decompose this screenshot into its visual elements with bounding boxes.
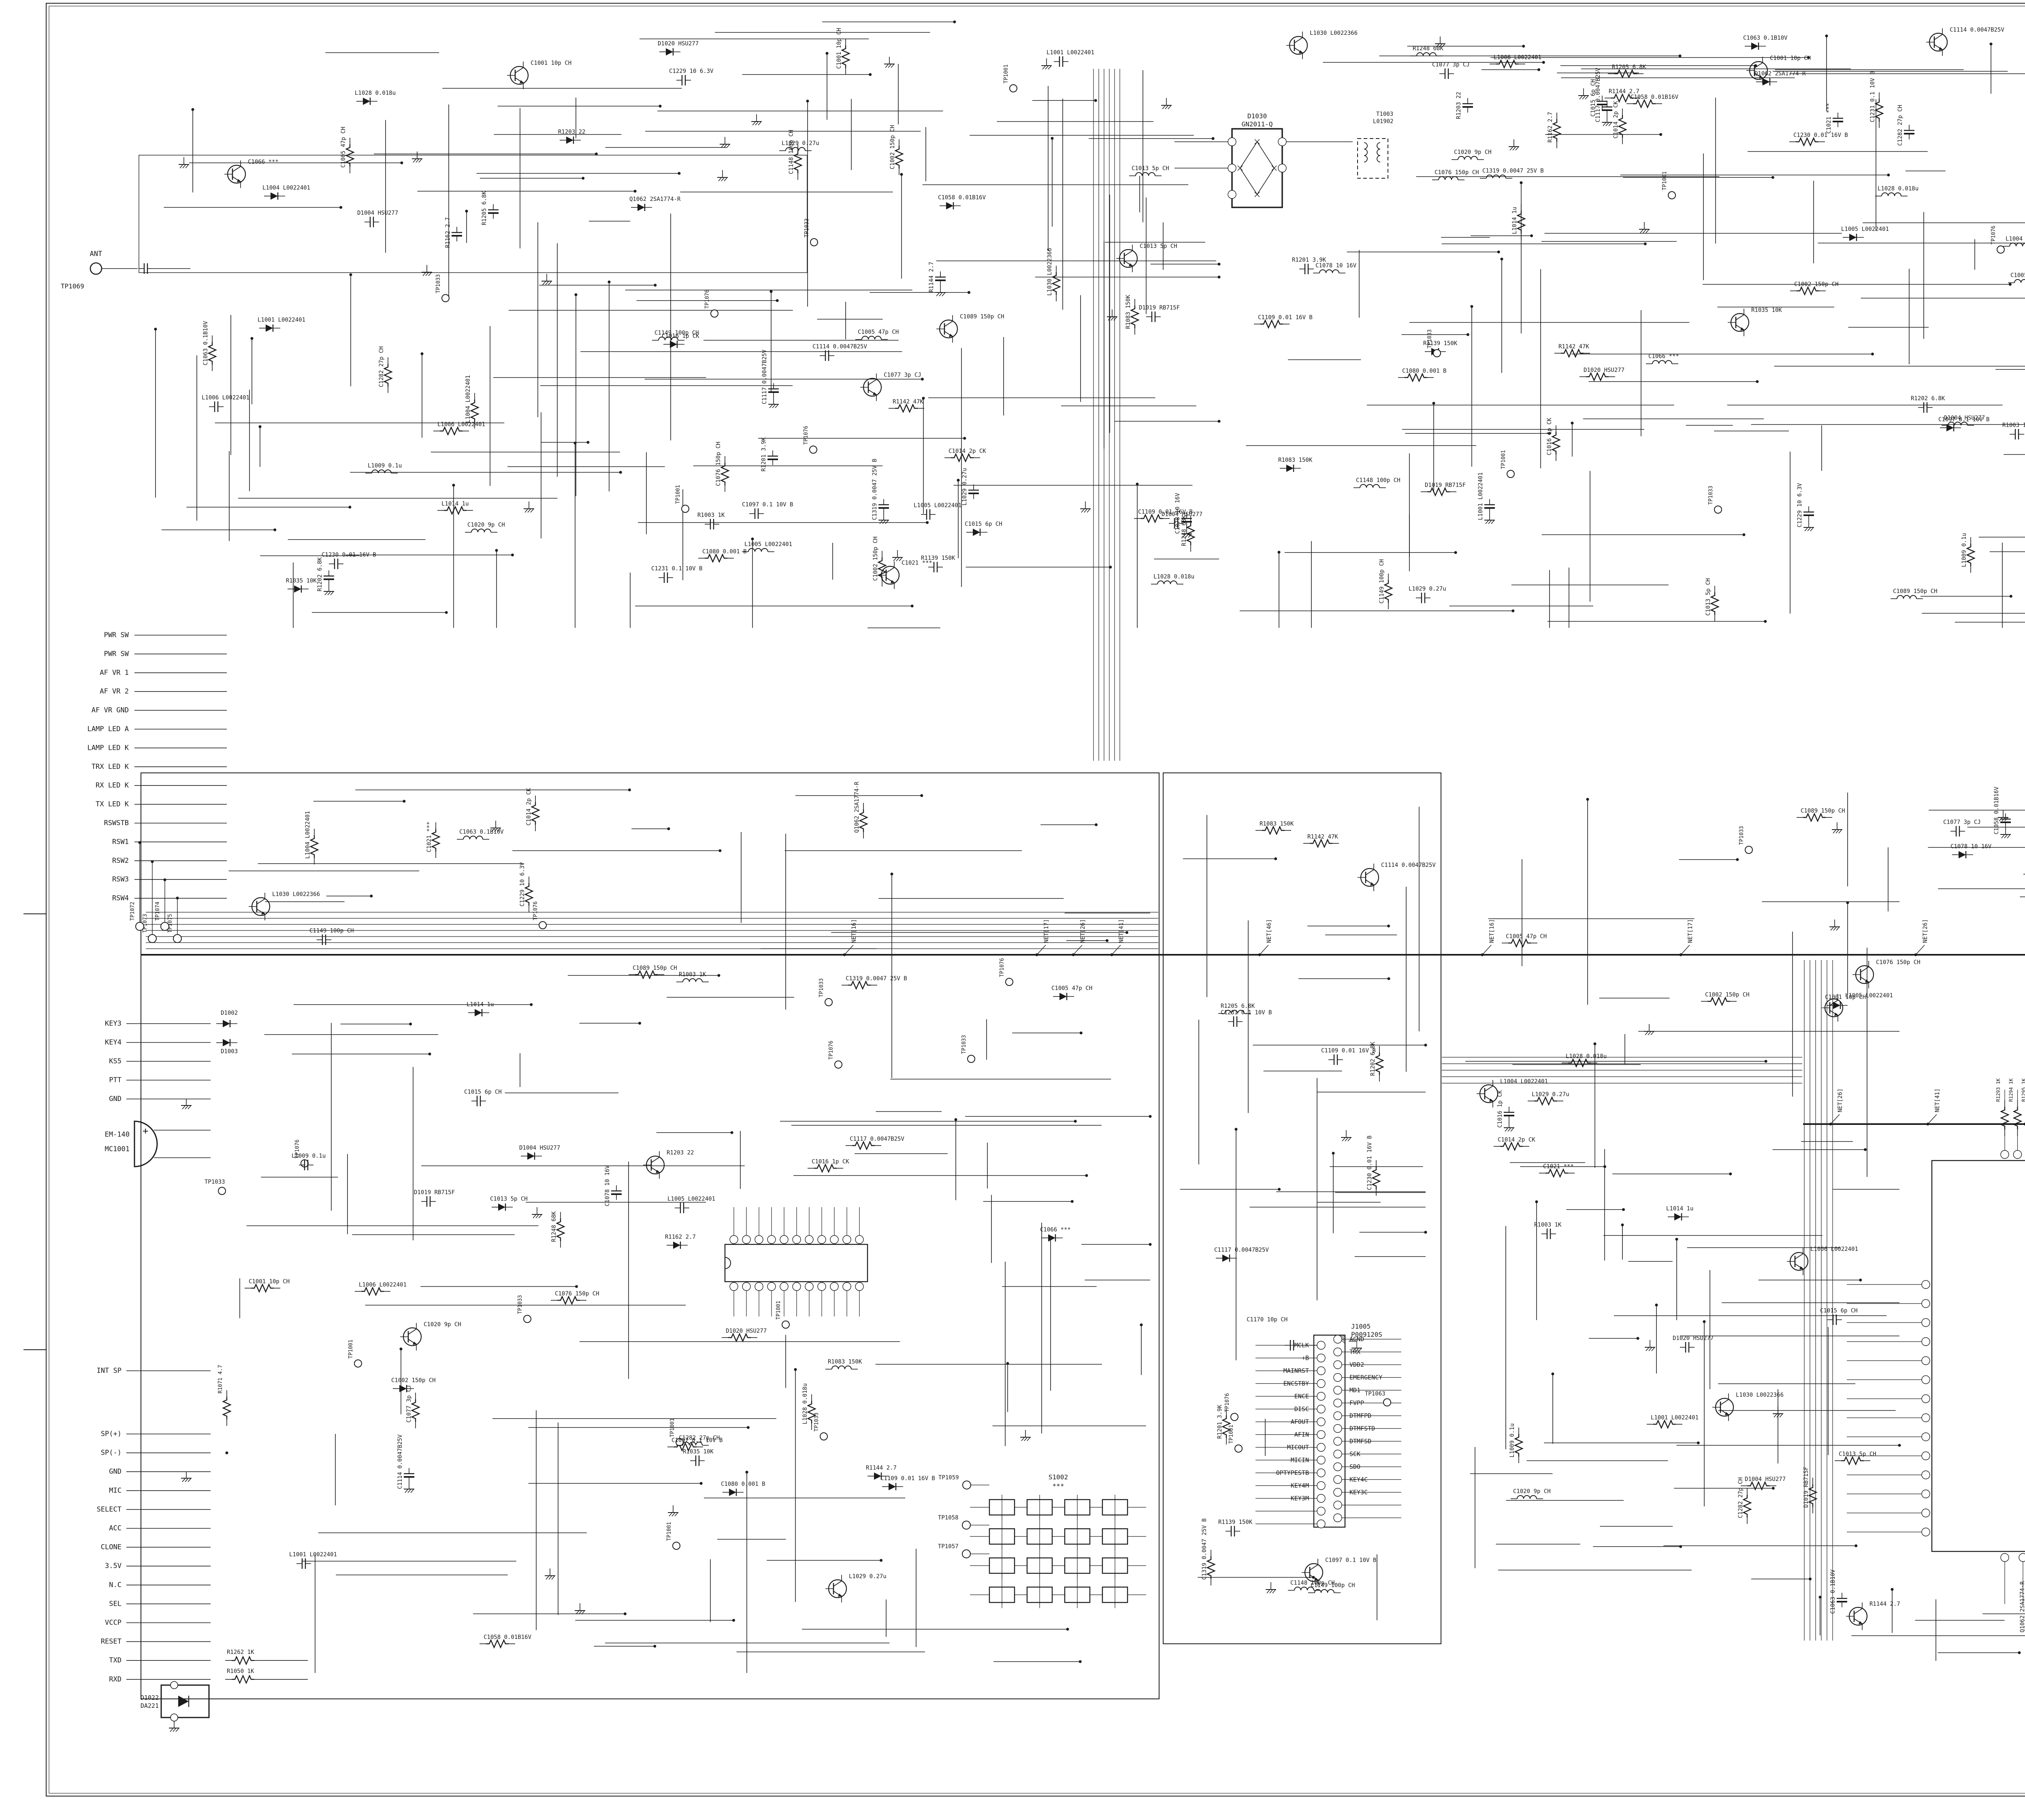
svg-text:C1063 0.1B10V: C1063 0.1B10V (1743, 35, 1788, 41)
svg-text:R1248 68K: R1248 68K (1181, 515, 1187, 546)
svg-text:DA221: DA221 (141, 1702, 159, 1709)
svg-text:C1148 100p CH: C1148 100p CH (1356, 477, 1400, 484)
svg-text:TP1069: TP1069 (61, 282, 84, 290)
svg-text:C1077 3p CJ: C1077 3p CJ (406, 1385, 412, 1423)
svg-text:TRX LED K: TRX LED K (92, 763, 129, 771)
svg-text:EM-140: EM-140 (105, 1131, 130, 1139)
svg-text:L1009 0.1u: L1009 0.1u (368, 463, 402, 469)
svg-text:C1230 0.01 16V B: C1230 0.01 16V B (1793, 132, 1848, 139)
landmark-layer (23, 3, 2025, 1796)
svg-text:PWR SW: PWR SW (104, 650, 129, 658)
svg-text:L1028 0.018u: L1028 0.018u (1566, 1053, 1607, 1060)
svg-text:C1020 9p CH: C1020 9p CH (424, 1321, 461, 1328)
svg-text:R1035 10K: R1035 10K (1751, 307, 1782, 314)
svg-text:C1005 47p CH: C1005 47p CH (858, 329, 899, 335)
svg-text:C1016 1p CK: C1016 1p CK (1497, 1090, 1503, 1128)
svg-text:L1006 L0022401: L1006 L0022401 (202, 395, 249, 401)
svg-text:C1231 0.1 10V B: C1231 0.1 10V B (1221, 1009, 1272, 1016)
svg-text:3.5V: 3.5V (105, 1562, 122, 1570)
svg-text:R1144 2.7: R1144 2.7 (928, 262, 935, 292)
svg-text:VCCP: VCCP (105, 1619, 122, 1627)
svg-text:C1058 0.01B16V: C1058 0.01B16V (938, 194, 986, 201)
svg-text:LAMP LED K: LAMP LED K (87, 744, 129, 752)
svg-text:D1019 RB715F: D1019 RB715F (1425, 482, 1466, 489)
svg-text:TP1033: TP1033 (814, 1412, 820, 1432)
svg-text:D1020 HSU277: D1020 HSU277 (1673, 1335, 1714, 1342)
svg-text:SEL: SEL (109, 1600, 122, 1608)
svg-text:D1004 HSU277: D1004 HSU277 (519, 1145, 560, 1151)
svg-text:TP1076: TP1076 (533, 901, 539, 920)
svg-text:L1030 L0022366: L1030 L0022366 (272, 891, 320, 898)
svg-text:RESET: RESET (101, 1638, 122, 1646)
svg-text:TP1001: TP1001 (1501, 450, 1507, 469)
svg-text:R1201 3.9K: R1201 3.9K (761, 437, 767, 472)
svg-text:TP1001: TP1001 (776, 1301, 782, 1320)
svg-text:R1071 4.7: R1071 4.7 (217, 1365, 224, 1393)
svg-text:R1083 150K: R1083 150K (1125, 294, 1132, 329)
svg-text:R1142 47K: R1142 47K (1307, 834, 1338, 840)
svg-text:D1004 HSU277: D1004 HSU277 (357, 210, 398, 216)
svg-text:RXD: RXD (109, 1675, 122, 1683)
svg-text:C1002 150p CH: C1002 150p CH (889, 125, 896, 169)
svg-text:R1294 1K: R1294 1K (2008, 1078, 2014, 1102)
svg-text:CLONE: CLONE (101, 1543, 122, 1551)
svg-text:TP1033: TP1033 (1427, 329, 1433, 348)
svg-text:NET[41]: NET[41] (1118, 919, 1125, 943)
svg-text:R1050 1K: R1050 1K (227, 1668, 254, 1675)
svg-text:RSW4: RSW4 (112, 894, 129, 903)
svg-text:R1205 6.8K: R1205 6.8K (481, 191, 488, 225)
svg-text:R1035 10K: R1035 10K (683, 1449, 714, 1455)
svg-text:C1021 ***: C1021 *** (426, 821, 433, 852)
connector-j1005 (1255, 1335, 1401, 1528)
svg-text:C1117 0.0047B25V: C1117 0.0047B25V (850, 1136, 904, 1142)
svg-text:L1006 L0022401: L1006 L0022401 (1494, 54, 1541, 61)
svg-text:D1004 HSU277: D1004 HSU277 (1944, 415, 1985, 421)
svg-text:NET[16]: NET[16] (851, 919, 857, 943)
svg-text:RSW2: RSW2 (112, 857, 129, 865)
svg-text:NET[17]: NET[17] (1687, 919, 1694, 943)
svg-text:C1149 100p CH: C1149 100p CH (1379, 559, 1385, 604)
svg-text:N.C: N.C (109, 1581, 122, 1589)
svg-text:D1004 HSU277: D1004 HSU277 (1745, 1476, 1786, 1483)
svg-text:C1282 27p CH: C1282 27p CH (378, 346, 385, 387)
svg-text:AF VR 2: AF VR 2 (100, 687, 129, 696)
svg-text:TP1033: TP1033 (1708, 486, 1714, 505)
keypad-s1002 (962, 1481, 1146, 1608)
svg-text:D1019 RB715F: D1019 RB715F (1803, 1467, 1810, 1508)
svg-text:C1089 150p CH: C1089 150p CH (1801, 808, 1845, 814)
svg-text:D1004 HSU277: D1004 HSU277 (1162, 511, 1202, 518)
svg-text:L1004 L0022401: L1004 L0022401 (305, 811, 311, 859)
svg-text:SP(-): SP(-) (101, 1449, 122, 1457)
svg-text:TP1075: TP1075 (167, 914, 173, 933)
svg-text:R1262 1K: R1262 1K (227, 1649, 254, 1656)
svg-text:L1014 1u: L1014 1u (467, 1001, 494, 1008)
svg-text:L1001 L0022401: L1001 L0022401 (1651, 1415, 1699, 1421)
svg-text:C1231 0.1 10V B: C1231 0.1 10V B (1869, 71, 1876, 122)
svg-text:L1005 L0022401: L1005 L0022401 (667, 1196, 715, 1202)
svg-text:L1005 L0022401: L1005 L0022401 (1845, 992, 1893, 999)
svg-text:NET[16]: NET[16] (1489, 919, 1495, 943)
svg-text:RX LED K: RX LED K (96, 781, 129, 789)
svg-text:KEY4: KEY4 (105, 1039, 122, 1047)
svg-text:L1014 1u: L1014 1u (1666, 1206, 1693, 1212)
svg-text:L1005 L0022401: L1005 L0022401 (1841, 226, 1889, 233)
dac-q1025 (725, 1207, 868, 1316)
svg-text:R1248 68K: R1248 68K (1413, 45, 1443, 52)
svg-text:S1002: S1002 (1049, 1473, 1068, 1481)
svg-text:L1030 L0022366: L1030 L0022366 (1047, 248, 1053, 296)
svg-text:TP1076: TP1076 (999, 958, 1005, 977)
svg-text:C1005 47p CH: C1005 47p CH (2010, 272, 2025, 279)
svg-text:C1109 0.01 16V B: C1109 0.01 16V B (880, 1475, 935, 1482)
svg-text:L1004 L0022401: L1004 L0022401 (2006, 236, 2025, 242)
svg-text:NET[26]: NET[26] (1837, 1088, 1844, 1112)
svg-text:Q1062 2SA1774-R: Q1062 2SA1774-R (2019, 1581, 2025, 1632)
svg-text:R1162 2.7: R1162 2.7 (445, 217, 451, 248)
svg-text:L01902: L01902 (1373, 118, 1394, 125)
svg-text:R1139 150K: R1139 150K (921, 555, 955, 561)
svg-text:D1019 RB715F: D1019 RB715F (1139, 305, 1180, 311)
svg-text:C1014 2p CK: C1014 2p CK (949, 448, 986, 454)
svg-text:L1029 0.27u: L1029 0.27u (961, 468, 968, 506)
svg-text:C1005 47p CH: C1005 47p CH (1051, 985, 1092, 992)
svg-text:L1001 L0022401: L1001 L0022401 (258, 317, 305, 323)
wire-layer (141, 21, 2025, 1673)
svg-text:R1083 150K: R1083 150K (1278, 457, 1313, 463)
svg-text:TP1076: TP1076 (803, 426, 809, 445)
svg-text:C1066 ***: C1066 *** (1648, 353, 1679, 360)
svg-text:C1117 0.0047B25V: C1117 0.0047B25V (1214, 1247, 1269, 1253)
svg-text:L1004 L0022401: L1004 L0022401 (1500, 1078, 1548, 1085)
svg-text:L1029 0.27u: L1029 0.27u (1409, 586, 1446, 592)
svg-text:L1029 0.27u: L1029 0.27u (849, 1573, 887, 1580)
svg-text:C1319 0.0047 25V B: C1319 0.0047 25V B (1201, 1518, 1208, 1580)
svg-text:R1003 1K: R1003 1K (2002, 422, 2025, 429)
svg-text:RSWSTB: RSWSTB (104, 819, 129, 827)
svg-text:C1319 0.0047 25V B: C1319 0.0047 25V B (1482, 168, 1544, 174)
svg-text:C1014 2p CK: C1014 2p CK (1613, 101, 1619, 139)
svg-text:TP1033: TP1033 (819, 978, 825, 997)
svg-text:R1295 1K: R1295 1K (2021, 1078, 2025, 1102)
svg-text:C1001 10p CH: C1001 10p CH (531, 60, 571, 66)
left-connector-mid (126, 1020, 237, 1195)
svg-text:TP1073: TP1073 (142, 914, 148, 933)
svg-text:C1231 0.1 10V B: C1231 0.1 10V B (651, 565, 702, 572)
svg-text:TXD: TXD (109, 1656, 122, 1664)
svg-text:C1170 10p CH: C1170 10p CH (1247, 1316, 1287, 1323)
svg-text:AF VR GND: AF VR GND (92, 706, 129, 715)
svg-text:INT SP: INT SP (97, 1367, 122, 1375)
svg-text:+: + (143, 1125, 148, 1137)
svg-text:C1149 100p CH: C1149 100p CH (1311, 1582, 1355, 1589)
svg-text:C1229 10 6.3V: C1229 10 6.3V (519, 862, 526, 907)
svg-text:C1230 0.01 16V B: C1230 0.01 16V B (322, 552, 376, 558)
svg-text:C1089 150p CH: C1089 150p CH (633, 965, 677, 971)
svg-text:GND: GND (109, 1095, 122, 1103)
svg-text:L1001 L0022401: L1001 L0022401 (289, 1551, 337, 1558)
svg-text:C1319 0.0047 25V B: C1319 0.0047 25V B (872, 459, 878, 520)
svg-text:C1016 1p CK: C1016 1p CK (812, 1159, 849, 1165)
svg-text:R1203 22: R1203 22 (1456, 92, 1462, 119)
svg-text:C1282 27p CH: C1282 27p CH (679, 1435, 720, 1441)
svg-text:C1080 0.001 B: C1080 0.001 B (721, 1481, 765, 1487)
svg-text:C1020 9p CH: C1020 9p CH (1513, 1488, 1551, 1495)
svg-text:C1114 0.0047B25V: C1114 0.0047B25V (812, 344, 867, 350)
svg-text:TP1001: TP1001 (669, 1418, 676, 1437)
svg-text:ANT: ANT (90, 250, 102, 258)
component-layer (179, 28, 2025, 1647)
svg-text:R1205 6.8K: R1205 6.8K (1612, 64, 1646, 70)
svg-text:R1003 1K: R1003 1K (1534, 1222, 1562, 1228)
svg-text:L1006 L0022401: L1006 L0022401 (1810, 1246, 1858, 1252)
svg-text:GN2011-Q: GN2011-Q (1241, 120, 1273, 128)
svg-text:L1004 L0022401: L1004 L0022401 (262, 185, 310, 191)
svg-text:L1004 L0022401: L1004 L0022401 (465, 375, 471, 423)
svg-text:R1201 3.9K: R1201 3.9K (1292, 257, 1326, 263)
svg-text:C1058 0.01B16V: C1058 0.01B16V (1631, 94, 1679, 100)
svg-text:C1117 0.0047B25V: C1117 0.0047B25V (761, 350, 768, 404)
svg-text:KS5: KS5 (109, 1057, 122, 1065)
svg-text:TP1033: TP1033 (804, 218, 810, 237)
svg-text:C1063 0.1B10V: C1063 0.1B10V (202, 321, 209, 365)
svg-text:C1063 0.1B10V: C1063 0.1B10V (459, 829, 504, 835)
svg-text:Q1062 2SA1774-R: Q1062 2SA1774-R (854, 781, 860, 833)
svg-text:R1083 150K: R1083 150K (1260, 821, 1294, 827)
svg-text:C1002 150p CH: C1002 150p CH (391, 1377, 436, 1384)
svg-text:TP1076: TP1076 (828, 1041, 834, 1060)
svg-text:R1139 150K: R1139 150K (1218, 1519, 1253, 1526)
svg-text:TP1074: TP1074 (155, 902, 161, 921)
svg-text:C1097 0.1 10V B: C1097 0.1 10V B (1325, 1557, 1376, 1564)
svg-text:Q1062 2SA1774-R: Q1062 2SA1774-R (629, 196, 681, 203)
svg-text:R1003 1K: R1003 1K (697, 512, 725, 518)
svg-text:RSW3: RSW3 (112, 875, 129, 883)
svg-text:C1021 ***: C1021 *** (1543, 1163, 1574, 1170)
svg-text:R1205 6.8K: R1205 6.8K (1221, 1003, 1255, 1009)
svg-text:KEY3: KEY3 (105, 1020, 122, 1028)
svg-text:L1006 L0022401: L1006 L0022401 (437, 421, 485, 428)
svg-text:T1003: T1003 (1376, 111, 1393, 117)
svg-text:D1019 RB715F: D1019 RB715F (414, 1189, 455, 1196)
svg-text:TP1001: TP1001 (1003, 64, 1009, 83)
svg-text:L1030 L0022366: L1030 L0022366 (1736, 1392, 1784, 1398)
svg-text:C1058 0.01B16V: C1058 0.01B16V (1993, 786, 2000, 834)
svg-text:***: *** (1053, 1482, 1064, 1490)
svg-text:C1013 5p CH: C1013 5p CH (1705, 578, 1712, 616)
svg-text:R1142 47K: R1142 47K (1558, 344, 1589, 350)
svg-text:TP1001: TP1001 (675, 485, 681, 504)
svg-text:C1109 0.01 16V B: C1109 0.01 16V B (1321, 1048, 1376, 1054)
svg-text:C1015 6p CH: C1015 6p CH (965, 521, 1002, 527)
svg-text:C1319 0.0047 25V B: C1319 0.0047 25V B (846, 975, 907, 982)
mixer-d1030 (1174, 129, 1388, 207)
svg-text:TP1033: TP1033 (205, 1179, 225, 1185)
svg-text:PTT: PTT (109, 1076, 122, 1084)
svg-text:C1066 ***: C1066 *** (248, 159, 279, 165)
svg-text:L1006 L0022401: L1006 L0022401 (359, 1282, 407, 1288)
svg-text:Q1062 2SA1774-R: Q1062 2SA1774-R (1754, 70, 1806, 77)
svg-text:MC1001: MC1001 (105, 1145, 130, 1153)
svg-text:RSW1: RSW1 (112, 838, 129, 846)
svg-text:C1005 47p CH: C1005 47p CH (340, 127, 347, 168)
svg-text:NET[17]: NET[17] (1043, 919, 1050, 943)
svg-text:TP1059: TP1059 (938, 1474, 959, 1481)
svg-text:C1001 10p CH: C1001 10p CH (836, 28, 842, 69)
svg-text:C1089 150p CH: C1089 150p CH (960, 314, 1004, 320)
svg-text:R1144 2.7: R1144 2.7 (1609, 88, 1639, 95)
svg-text:D1020 HSU277: D1020 HSU277 (726, 1328, 767, 1334)
svg-text:D1003: D1003 (221, 1048, 238, 1055)
svg-text:C1015 6p CH: C1015 6p CH (1820, 1308, 1858, 1314)
svg-text:C1078 10 16V: C1078 10 16V (604, 1165, 611, 1206)
svg-text:C1020 9p CH: C1020 9p CH (467, 522, 505, 528)
svg-text:D1030: D1030 (1247, 112, 1267, 120)
svg-text:R1202 6.8K: R1202 6.8K (1911, 395, 1945, 402)
svg-text:R1203 22: R1203 22 (667, 1150, 694, 1156)
svg-text:C1013 5p CH: C1013 5p CH (490, 1196, 528, 1202)
svg-text:C1149 100p CH: C1149 100p CH (654, 330, 699, 336)
svg-text:R1083 150K: R1083 150K (828, 1359, 862, 1365)
svg-text:R1202 6.8K: R1202 6.8K (1370, 1041, 1376, 1076)
svg-text:R1142 47K: R1142 47K (893, 399, 923, 405)
svg-text:C1063 0.1B10V: C1063 0.1B10V (1830, 1569, 1836, 1614)
svg-text:R1202 6.8K: R1202 6.8K (317, 557, 323, 591)
svg-text:C1076 150p CH: C1076 150p CH (555, 1291, 599, 1297)
svg-text:L1028 0.018u: L1028 0.018u (802, 1383, 808, 1424)
svg-text:TP1058: TP1058 (938, 1515, 959, 1521)
svg-text:ACC: ACC (109, 1524, 122, 1532)
svg-text:C1002 150p CH: C1002 150p CH (1794, 281, 1839, 288)
svg-text:C1058 0.01B16V: C1058 0.01B16V (484, 1634, 532, 1641)
svg-text:R1162 2.7: R1162 2.7 (665, 1234, 696, 1240)
svg-text:C1230 0.01 16V B: C1230 0.01 16V B (1366, 1135, 1373, 1190)
svg-text:TX LED K: TX LED K (96, 800, 129, 809)
svg-text:C1014 2p CK: C1014 2p CK (526, 788, 532, 826)
svg-text:NET[26]: NET[26] (1922, 919, 1929, 943)
left-connector-upper (134, 635, 227, 943)
svg-text:C1080 0.001 B: C1080 0.001 B (1402, 368, 1447, 374)
svg-text:L1029 0.27u: L1029 0.27u (782, 140, 819, 147)
svg-text:TP1001: TP1001 (348, 1340, 354, 1359)
svg-text:C1076 150p CH: C1076 150p CH (1876, 959, 1921, 966)
svg-text:MIC: MIC (109, 1487, 122, 1495)
svg-text:C1013 5p CH: C1013 5p CH (1132, 165, 1169, 172)
svg-text:TP1076: TP1076 (1991, 226, 1997, 245)
svg-text:C1002 150p CH: C1002 150p CH (872, 536, 879, 581)
svg-text:L1028 0.018u: L1028 0.018u (1153, 574, 1194, 580)
svg-text:LAMP LED A: LAMP LED A (87, 725, 129, 733)
svg-text:TP1001: TP1001 (666, 1522, 672, 1541)
svg-text:L1028 0.018u: L1028 0.018u (355, 90, 396, 96)
svg-text:C1114 0.0047B25V: C1114 0.0047B25V (1381, 862, 1436, 868)
svg-text:C1117 0.0047B25V: C1117 0.0047B25V (1595, 68, 1601, 122)
svg-text:GND: GND (109, 1468, 122, 1476)
svg-text:TP1033: TP1033 (961, 1035, 967, 1054)
svg-text:C1013 5p CH: C1013 5p CH (1140, 243, 1177, 250)
svg-text:NET[26]: NET[26] (1080, 919, 1086, 943)
svg-text:L1028 0.018u: L1028 0.018u (1878, 186, 1918, 192)
svg-text:L1009 0.1u: L1009 0.1u (1509, 1423, 1516, 1457)
svg-text:C1066 ***: C1066 *** (1040, 1227, 1071, 1233)
svg-text:L1014 1u: L1014 1u (441, 501, 469, 507)
svg-text:C1014 2p CK: C1014 2p CK (1498, 1137, 1535, 1143)
svg-text:L1005 L0022401: L1005 L0022401 (914, 502, 961, 509)
svg-text:R1203 22: R1203 22 (558, 129, 585, 135)
svg-text:C1109 0.01 16V B: C1109 0.01 16V B (1258, 314, 1313, 321)
svg-text:TP1072: TP1072 (130, 902, 136, 921)
svg-text:C1078 10 16V: C1078 10 16V (1315, 262, 1357, 269)
svg-text:TP1033: TP1033 (1739, 826, 1745, 845)
svg-text:C1089 150p CH: C1089 150p CH (1893, 588, 1938, 595)
svg-text:L1001 L0022401: L1001 L0022401 (1477, 472, 1484, 520)
svg-text:D1020 HSU277: D1020 HSU277 (658, 41, 699, 47)
svg-text:NET[41]: NET[41] (1934, 1088, 1941, 1112)
svg-text:C1282 27p CH: C1282 27p CH (1737, 1477, 1744, 1518)
schematic-page: NET[16]NET[17]NET[26]NET[41]NET[46]NET[1… (0, 0, 2025, 1820)
svg-text:L1009 0.1u: L1009 0.1u (292, 1153, 326, 1159)
svg-text:R1293 1K: R1293 1K (1995, 1078, 2001, 1102)
svg-text:R1035 10K: R1035 10K (286, 578, 317, 584)
svg-text:PWR SW: PWR SW (104, 631, 129, 639)
svg-text:C1015 6p CH: C1015 6p CH (464, 1089, 502, 1095)
svg-text:C1076 150p CH: C1076 150p CH (715, 442, 722, 486)
svg-text:TP1001: TP1001 (1228, 1425, 1234, 1444)
svg-text:C1229 10 6.3V: C1229 10 6.3V (1797, 483, 1803, 527)
svg-text:TP1063: TP1063 (1365, 1391, 1386, 1397)
svg-text:C1021 ***: C1021 *** (1826, 103, 1832, 134)
svg-text:R1003 1K: R1003 1K (679, 971, 706, 978)
svg-text:L1030 L0022366: L1030 L0022366 (1310, 30, 1358, 36)
svg-text:C1016 1p CK: C1016 1p CK (1546, 418, 1553, 455)
svg-text:L1009 0.1u: L1009 0.1u (1961, 533, 1967, 567)
svg-text:C1149 100p CH: C1149 100p CH (309, 928, 354, 934)
schematic-canvas: NET[16]NET[17]NET[26]NET[41]NET[46]NET[1… (0, 0, 2025, 1820)
svg-text:SELECT: SELECT (97, 1505, 122, 1513)
svg-text:C1229 10 6.3V: C1229 10 6.3V (669, 68, 714, 75)
svg-text:C1002 150p CH: C1002 150p CH (1705, 992, 1750, 998)
svg-text:R1144 2.7: R1144 2.7 (1869, 1601, 1900, 1607)
svg-text:TP1033: TP1033 (435, 274, 441, 293)
svg-text:R1162 2.7: R1162 2.7 (1547, 112, 1554, 143)
svg-text:TP1076: TP1076 (1224, 1393, 1230, 1412)
svg-text:C1077 3p CJ: C1077 3p CJ (1432, 62, 1470, 68)
svg-text:D1002: D1002 (221, 1010, 238, 1016)
svg-text:C1097 0.1 10V B: C1097 0.1 10V B (742, 501, 793, 508)
cpu-q1048 (1847, 1090, 2025, 1604)
svg-text:R1201 3.9K: R1201 3.9K (1217, 1404, 1223, 1439)
svg-text:J1005: J1005 (1351, 1323, 1371, 1330)
svg-text:C1114 0.0047B25V: C1114 0.0047B25V (397, 1434, 403, 1489)
svg-text:C1080 0.001 B: C1080 0.001 B (702, 548, 747, 555)
svg-text:C1078 10 16V: C1078 10 16V (1950, 843, 1992, 850)
svg-text:C1076 150p CH: C1076 150p CH (1435, 169, 1479, 176)
svg-text:C1282 27p CH: C1282 27p CH (1897, 105, 1904, 146)
left-connector-lower (126, 1371, 308, 1732)
svg-text:TP1076: TP1076 (704, 290, 710, 309)
svg-text:D1020 HSU277: D1020 HSU277 (1584, 367, 1624, 373)
svg-text:R1248 68K: R1248 68K (551, 1211, 557, 1242)
svg-text:TP1001: TP1001 (1662, 171, 1668, 190)
label-layer: NET[16]NET[17]NET[26]NET[41]NET[46]NET[1… (61, 27, 2025, 1709)
svg-text:C1001 10p CH: C1001 10p CH (1770, 55, 1811, 62)
svg-text:NET[46]: NET[46] (1266, 919, 1273, 943)
svg-text:C1114 0.0047B25V: C1114 0.0047B25V (1950, 27, 2004, 33)
svg-text:C1077 3p CJ: C1077 3p CJ (1943, 819, 1981, 826)
svg-text:C1001 10p CH: C1001 10p CH (249, 1278, 290, 1285)
svg-text:L1029 0.27u: L1029 0.27u (1532, 1091, 1569, 1098)
